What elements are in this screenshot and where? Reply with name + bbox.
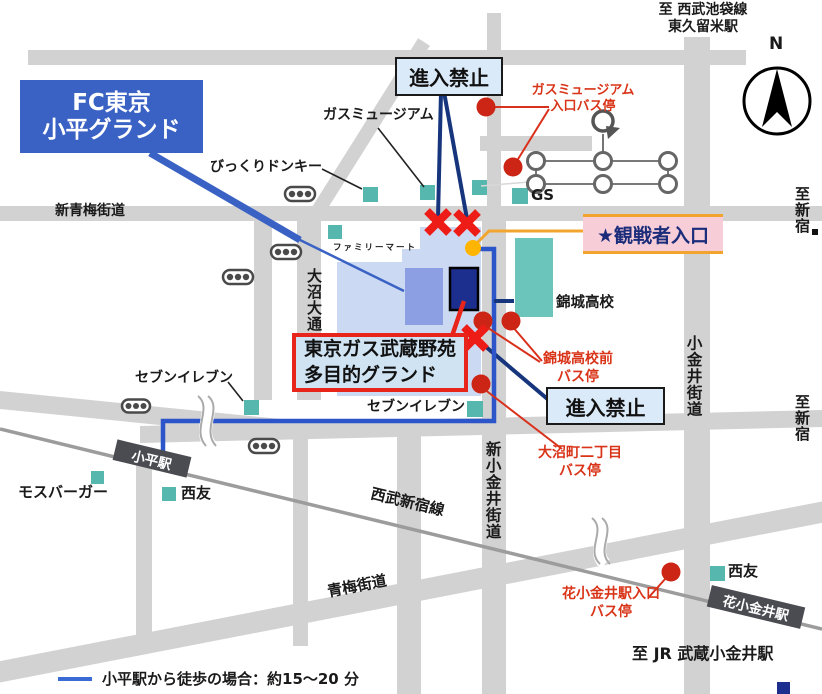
kinjo-high-school-building: [515, 238, 553, 317]
bus-stop-label-gas-museum: ガスミュージアム 入口バス停: [520, 83, 646, 116]
bus-stop-label-hanakoganei: 花小金井駅入口 バス停: [558, 586, 664, 621]
direction-line-1: 至 西武池袋線: [628, 2, 778, 19]
spectator-entrance-dot: [465, 240, 481, 256]
direction-to-seibu-ikebukuro: 至 西武池袋線 東久留米駅: [628, 2, 778, 36]
road-label-shin-oume: 新青梅街道: [55, 203, 125, 220]
compass-icon: [744, 68, 810, 134]
ground-name-line2: 多目的グランド: [304, 363, 464, 389]
ground-name-box: 東京ガス武蔵野苑 多目的グランド: [292, 333, 468, 392]
poi-label-gas-station: GS: [531, 186, 554, 204]
poi-label-mos-burger: モスバーガー: [18, 483, 108, 501]
fc-tokyo-line2: 小平グランド: [43, 117, 181, 143]
walking-route-swatch: [58, 677, 92, 681]
legend: 小平駅から徒歩の場合：約15～20 分: [58, 668, 359, 689]
no-entry-box-bottom: 進入禁止: [546, 387, 665, 425]
poi-label-bikkuri-donkey: びっくりドンキー: [210, 159, 322, 176]
bus-stop-line: 花小金井駅入口: [558, 586, 664, 604]
multipurpose-field-rect: [405, 268, 443, 325]
bus-stop-line: ガスミュージアム: [520, 83, 646, 99]
fc-tokyo-title-box: FC東京 小平グランド: [20, 80, 203, 153]
bus-stop-line: 大沼町二丁目: [530, 445, 630, 463]
bus-stop-label-kinjo-mae: 錦城高校前 バス停: [535, 351, 621, 386]
fc-tokyo-line1: FC東京: [43, 90, 181, 116]
distance-break-mark-west: [198, 396, 216, 446]
direction-to-shinjuku-upper: 至新宿: [793, 186, 811, 234]
distance-break-mark-east: [592, 518, 610, 564]
bus-stop-line: バス停: [530, 463, 630, 481]
stray-dot: [812, 229, 818, 235]
no-entry-box-top: 進入禁止: [395, 57, 503, 96]
poi-label-kinjo-high-school: 錦城高校: [556, 295, 614, 312]
direction-to-jr-musashikoganei: 至 JR 武蔵小金井駅: [632, 644, 773, 663]
poi-label-seiyu-west: 西友: [181, 484, 211, 502]
legend-text: 小平駅から徒歩の場合：約15～20 分: [102, 668, 359, 689]
route-map-canvas: 新青梅街道 ガスミュージアム びっくりドンキー ファミリーマート GS 錦城高校…: [0, 0, 822, 694]
bus-stop-line: 入口バス停: [520, 99, 646, 115]
poi-label-seven-eleven-west: セブンイレブン: [135, 370, 233, 387]
bus-stop-label-onuma-2chome: 大沼町二丁目 バス停: [530, 445, 630, 480]
road-label-shin-koganei: 新小金井街道: [483, 441, 502, 540]
poi-label-gas-museum: ガスミュージアム: [323, 107, 434, 124]
bus-stop-line: 錦城高校前: [535, 351, 621, 369]
bus-stop-line: バス停: [535, 369, 621, 387]
direction-to-shinjuku-lower: 至新宿: [793, 394, 811, 442]
road-label-koganei: 小金井街道: [684, 335, 703, 418]
direction-line-2: 東久留米駅: [628, 19, 778, 36]
poi-label-family-mart: ファミリーマート: [333, 243, 417, 253]
ground-name-line1: 東京ガス武蔵野苑: [304, 337, 464, 363]
compass-north-label: N: [769, 34, 783, 54]
bus-stop-line: バス停: [558, 604, 664, 622]
poi-label-seiyu-east: 西友: [728, 562, 758, 580]
corner-decoration-square: [777, 682, 790, 694]
spectator-entrance-box: ★観戦者入口: [583, 214, 723, 254]
poi-label-seven-eleven-center: セブンイレブン: [367, 399, 465, 416]
